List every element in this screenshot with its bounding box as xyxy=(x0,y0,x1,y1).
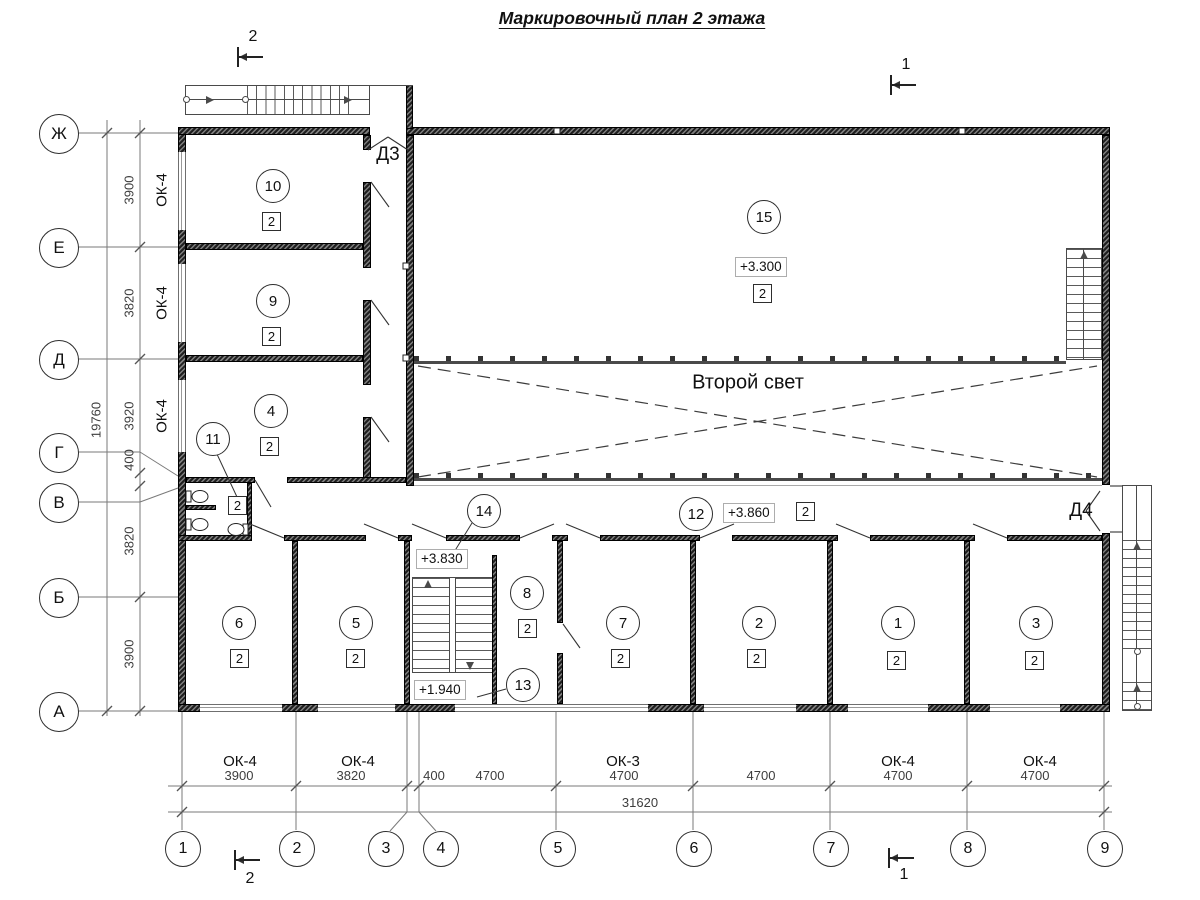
window-label-ok4-3: ОК-4 xyxy=(881,753,915,770)
door-room10 xyxy=(371,182,389,207)
door-room5 xyxy=(364,524,398,538)
toilet-icon-3-bowl xyxy=(228,524,244,536)
window-label-west-1: ОК-4 xyxy=(154,173,171,207)
axis-bubble-b: Б xyxy=(39,578,79,618)
room-class-1: 2 xyxy=(887,651,906,670)
axis-bubble-7: 7 xyxy=(813,831,849,867)
dim-total-bottom: 31620 xyxy=(622,795,658,810)
section-mark-2-top-label: 2 xyxy=(249,28,258,46)
room-bubble-2: 2 xyxy=(742,606,776,640)
leader-room13 xyxy=(477,689,506,697)
room-bubble-3: 3 xyxy=(1019,606,1053,640)
dim-8-9: 4700 xyxy=(1021,768,1050,783)
room-class-10: 2 xyxy=(262,212,281,231)
section-mark-1-bottom-label: 1 xyxy=(900,866,909,884)
dim-1-2: 3900 xyxy=(225,768,254,783)
room-class-15: 2 xyxy=(753,284,772,303)
room-bubble-11: 11 xyxy=(196,422,230,456)
atrium-label: Второй свет xyxy=(692,372,804,395)
room-bubble-9: 9 xyxy=(256,284,290,318)
room-bubble-13: 13 xyxy=(506,668,540,702)
axis-bubble-v: В xyxy=(39,483,79,523)
axis-bubble-9: 9 xyxy=(1087,831,1123,867)
dim-total-left: 19760 xyxy=(89,402,104,438)
room-bubble-14: 14 xyxy=(467,494,501,528)
drawing-lines xyxy=(0,0,1200,900)
axis-bubble-1: 1 xyxy=(165,831,201,867)
section-mark-2-bottom-label: 2 xyxy=(246,870,255,888)
axis-bubble-6: 6 xyxy=(676,831,712,867)
door-room4 xyxy=(371,417,389,442)
section-mark-2-top-line xyxy=(238,56,263,58)
door-leaf-lines xyxy=(250,137,1122,648)
room-class-5: 2 xyxy=(346,649,365,668)
dim-4-5: 4700 xyxy=(476,768,505,783)
axis-bubble-8: 8 xyxy=(950,831,986,867)
floor-plan: Маркировочный план 2 этажа xyxy=(0,0,1200,900)
column-markers xyxy=(403,128,965,361)
axis-bubble-4: 4 xyxy=(423,831,459,867)
room-bubble-15: 15 xyxy=(747,200,781,234)
door-room7 xyxy=(566,524,600,538)
section-mark-1-top-line xyxy=(891,84,916,86)
room-bubble-4: 4 xyxy=(254,394,288,428)
room-class-11: 2 xyxy=(228,496,247,515)
door-label-d3: Д3 xyxy=(376,144,399,166)
window-label-west-3: ОК-4 xyxy=(154,399,171,433)
door-wc xyxy=(255,480,271,507)
dimension-lines xyxy=(107,120,1112,812)
dim-5-6: 4700 xyxy=(610,768,639,783)
room-bubble-8: 8 xyxy=(510,576,544,610)
dim-7-8: 4700 xyxy=(884,768,913,783)
section-mark-1-bottom-line xyxy=(889,857,914,859)
dimension-ticks xyxy=(102,128,1109,817)
door-stair-landing xyxy=(412,524,446,538)
axis-bubble-d: Д xyxy=(39,340,79,380)
axis-leader-lines xyxy=(77,133,1104,831)
axis-bubble-e: Е xyxy=(39,228,79,268)
toilet-icon-1-tank xyxy=(186,491,191,502)
door-room6 xyxy=(250,524,284,538)
room-class-6: 2 xyxy=(230,649,249,668)
dim-2-3: 3820 xyxy=(337,768,366,783)
room-class-7: 2 xyxy=(611,649,630,668)
door-room8-7 xyxy=(563,624,580,648)
dim-6-7: 4700 xyxy=(747,768,776,783)
door-room3 xyxy=(973,524,1007,538)
axis-bubble-2: 2 xyxy=(279,831,315,867)
room-class-2: 2 xyxy=(747,649,766,668)
dim-v-b: 3820 xyxy=(122,527,137,556)
dim-g-v: 400 xyxy=(122,449,137,471)
dim-b-a: 3900 xyxy=(122,640,137,669)
window-label-west-2: ОК-4 xyxy=(154,286,171,320)
door-room8 xyxy=(520,524,554,538)
room-class-4: 2 xyxy=(260,437,279,456)
dim-3-4: 400 xyxy=(423,768,445,783)
page-title: Маркировочный план 2 этажа xyxy=(499,8,766,29)
window-label-ok4-4: ОК-4 xyxy=(1023,753,1057,770)
elevation-hall: +3.300 xyxy=(735,257,787,277)
dim-zh-e: 3900 xyxy=(122,176,137,205)
room-bubble-6: 6 xyxy=(222,606,256,640)
room-bubble-10: 10 xyxy=(256,169,290,203)
window-label-ok4-1: ОК-4 xyxy=(223,753,257,770)
toilet-icon-2-tank xyxy=(186,519,191,530)
elevation-landing: +3.830 xyxy=(416,549,468,569)
elevation-corridor: +3.860 xyxy=(723,503,775,523)
elevation-half-landing: +1.940 xyxy=(414,680,466,700)
window-label-ok4-2: ОК-4 xyxy=(341,753,375,770)
room-class-8: 2 xyxy=(518,619,537,638)
door-room9 xyxy=(371,300,389,325)
axis-bubble-3: 3 xyxy=(368,831,404,867)
room-bubble-7: 7 xyxy=(606,606,640,640)
leader-room11 xyxy=(216,452,237,497)
room-bubble-12: 12 xyxy=(679,497,713,531)
axis-bubble-zh: Ж xyxy=(39,114,79,154)
dim-e-d: 3820 xyxy=(122,289,137,318)
toilet-icon-2-bowl xyxy=(192,519,208,531)
axis-bubble-5: 5 xyxy=(540,831,576,867)
section-mark-1-top-label: 1 xyxy=(902,56,911,74)
section-mark-2-bottom-line xyxy=(235,859,260,861)
window-label-ok3: ОК-3 xyxy=(606,753,640,770)
room-class-3: 2 xyxy=(1025,651,1044,670)
room-class-12: 2 xyxy=(796,502,815,521)
room-bubble-5: 5 xyxy=(339,606,373,640)
room-class-9: 2 xyxy=(262,327,281,346)
axis-bubble-a: А xyxy=(39,692,79,732)
axis-bubble-g: Г xyxy=(39,433,79,473)
door-label-d4: Д4 xyxy=(1069,500,1092,522)
toilet-icon-1-bowl xyxy=(192,491,208,503)
room-bubble-1: 1 xyxy=(881,606,915,640)
dim-d-g: 3920 xyxy=(122,402,137,431)
door-room1 xyxy=(836,524,870,538)
